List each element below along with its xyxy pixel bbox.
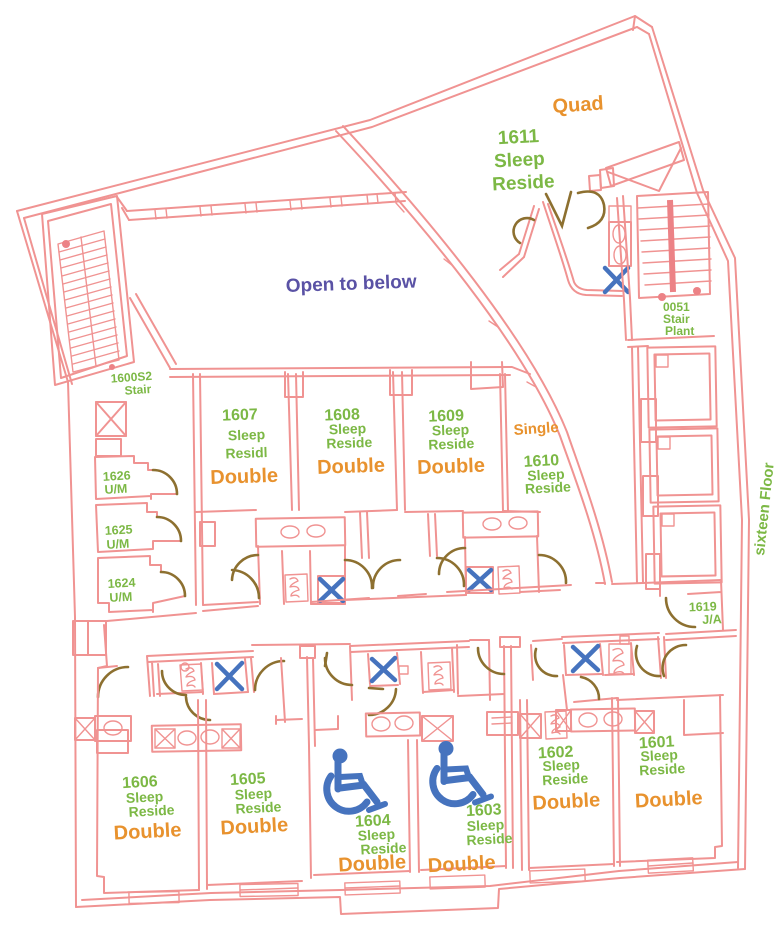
svg-text:Reside: Reside [428,435,475,453]
svg-text:Plant: Plant [665,324,694,338]
svg-text:Quad: Quad [552,92,605,118]
svg-text:Double: Double [317,454,386,478]
svg-text:Reside: Reside [525,478,572,496]
svg-text:Residl: Residl [225,444,268,461]
svg-text:Single: Single [513,419,559,439]
svg-text:U/M: U/M [104,482,128,497]
svg-text:Reside: Reside [492,171,555,195]
svg-text:Reside: Reside [128,801,175,819]
svg-text:Reside: Reside [326,434,373,452]
svg-text:1625: 1625 [104,522,133,537]
svg-text:sixteen Floor: sixteen Floor [751,462,778,557]
svg-text:Double: Double [113,819,182,845]
svg-text:U/M: U/M [109,590,133,605]
svg-text:Double: Double [532,789,601,815]
svg-text:U/M: U/M [106,537,130,552]
svg-text:Open to below: Open to below [285,271,417,297]
svg-text:Double: Double [210,465,279,489]
svg-text:Reside: Reside [466,830,513,848]
svg-text:1607: 1607 [222,406,258,424]
svg-text:1611: 1611 [497,126,540,149]
svg-text:1624: 1624 [107,576,136,591]
svg-text:Stair: Stair [124,382,152,398]
svg-text:J/A: J/A [702,612,722,627]
svg-text:Double: Double [417,455,486,479]
svg-text:Reside: Reside [639,760,686,778]
svg-text:Double: Double [338,851,407,877]
svg-text:Double: Double [427,852,496,878]
svg-text:Sleep: Sleep [228,426,266,443]
svg-text:Double: Double [220,814,289,840]
svg-text:Sleep: Sleep [494,149,546,173]
svg-text:Double: Double [634,787,703,813]
svg-text:Reside: Reside [542,770,589,788]
